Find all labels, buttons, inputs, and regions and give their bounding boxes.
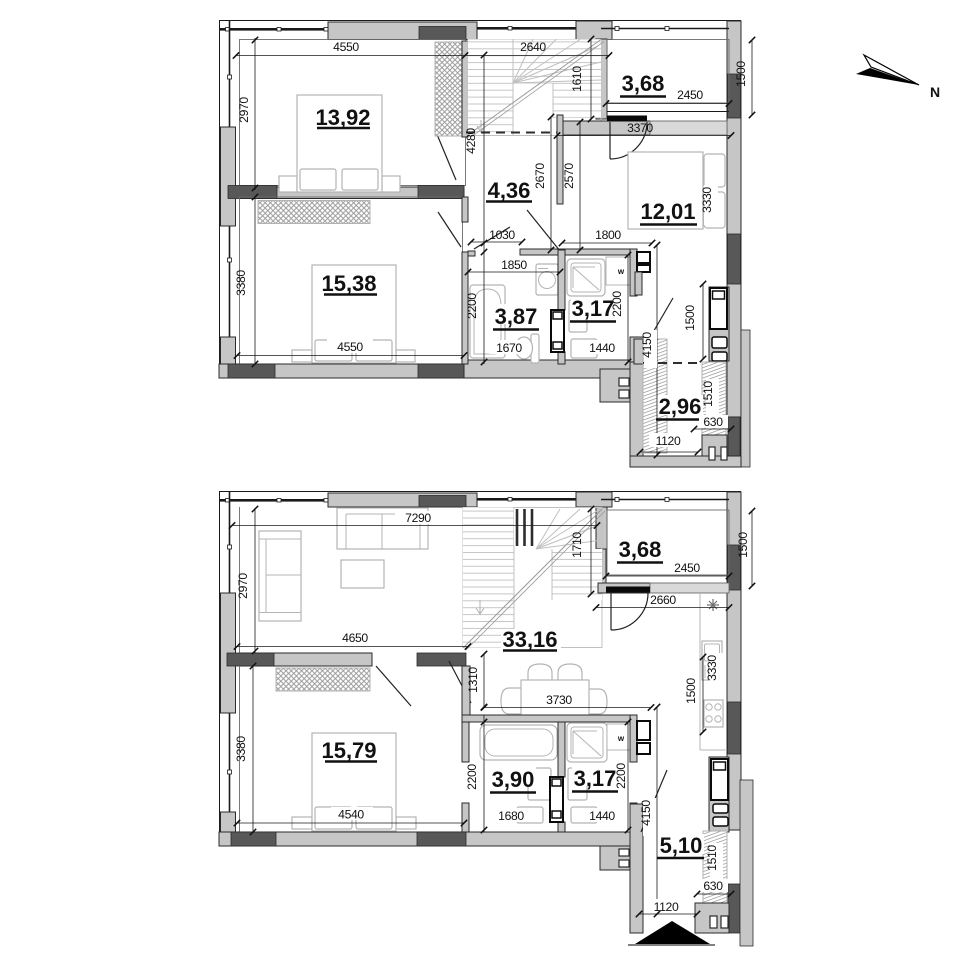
svg-text:1120: 1120 <box>654 900 679 914</box>
svg-text:2200: 2200 <box>610 291 624 317</box>
svg-text:3,87: 3,87 <box>495 304 538 329</box>
svg-text:3,68: 3,68 <box>622 71 665 96</box>
svg-text:630: 630 <box>703 415 723 429</box>
svg-text:1680: 1680 <box>498 809 524 823</box>
svg-text:3330: 3330 <box>700 187 714 213</box>
svg-text:1510: 1510 <box>705 845 719 871</box>
svg-text:2670: 2670 <box>533 163 547 189</box>
svg-text:5,10: 5,10 <box>660 833 703 858</box>
svg-text:2200: 2200 <box>614 763 628 789</box>
svg-text:630: 630 <box>703 879 723 893</box>
svg-text:1500: 1500 <box>684 678 698 704</box>
svg-text:3,68: 3,68 <box>619 537 662 562</box>
svg-text:13,92: 13,92 <box>315 105 370 130</box>
svg-text:2640: 2640 <box>520 40 546 54</box>
svg-text:4280: 4280 <box>464 128 478 154</box>
svg-text:15,79: 15,79 <box>321 738 376 763</box>
svg-text:2970: 2970 <box>236 573 250 599</box>
svg-text:4550: 4550 <box>337 340 363 354</box>
svg-text:7290: 7290 <box>405 511 431 525</box>
svg-text:2200: 2200 <box>465 764 479 790</box>
svg-text:1030: 1030 <box>489 228 515 242</box>
svg-text:2660: 2660 <box>650 593 676 607</box>
svg-text:4150: 4150 <box>639 800 653 826</box>
svg-text:1710: 1710 <box>570 532 584 558</box>
svg-text:3370: 3370 <box>627 121 653 135</box>
svg-text:33,16: 33,16 <box>502 627 557 652</box>
svg-text:w: w <box>617 267 625 276</box>
svg-text:3,90: 3,90 <box>492 767 535 792</box>
svg-text:15,38: 15,38 <box>321 271 376 296</box>
svg-text:N: N <box>930 84 940 100</box>
svg-text:1610: 1610 <box>570 66 584 92</box>
svg-text:1440: 1440 <box>589 809 615 823</box>
svg-text:1850: 1850 <box>501 258 527 272</box>
svg-text:1120: 1120 <box>656 434 681 448</box>
svg-text:3730: 3730 <box>546 693 572 707</box>
svg-text:3380: 3380 <box>234 736 248 762</box>
svg-text:1500: 1500 <box>736 532 750 558</box>
svg-text:2450: 2450 <box>677 88 703 102</box>
svg-text:3,17: 3,17 <box>574 766 617 791</box>
svg-text:12,01: 12,01 <box>640 199 695 224</box>
svg-text:2,96: 2,96 <box>659 394 702 419</box>
svg-text:1310: 1310 <box>466 667 480 693</box>
svg-text:2970: 2970 <box>237 97 251 123</box>
svg-text:2450: 2450 <box>674 561 700 575</box>
svg-text:2570: 2570 <box>562 163 576 189</box>
svg-text:4540: 4540 <box>338 808 364 822</box>
svg-text:1510: 1510 <box>701 381 715 407</box>
svg-text:1500: 1500 <box>683 305 697 331</box>
svg-text:4,36: 4,36 <box>488 178 531 203</box>
svg-text:1440: 1440 <box>589 341 615 355</box>
svg-text:1800: 1800 <box>595 228 621 242</box>
svg-text:3330: 3330 <box>705 655 719 681</box>
svg-text:4650: 4650 <box>342 631 368 645</box>
svg-text:3380: 3380 <box>234 270 248 296</box>
svg-text:w: w <box>617 734 625 743</box>
svg-text:2200: 2200 <box>465 293 479 319</box>
svg-text:4550: 4550 <box>333 40 359 54</box>
svg-text:3,17: 3,17 <box>572 296 615 321</box>
svg-text:1670: 1670 <box>496 341 522 355</box>
svg-text:4150: 4150 <box>640 332 654 358</box>
svg-text:1500: 1500 <box>734 61 748 87</box>
